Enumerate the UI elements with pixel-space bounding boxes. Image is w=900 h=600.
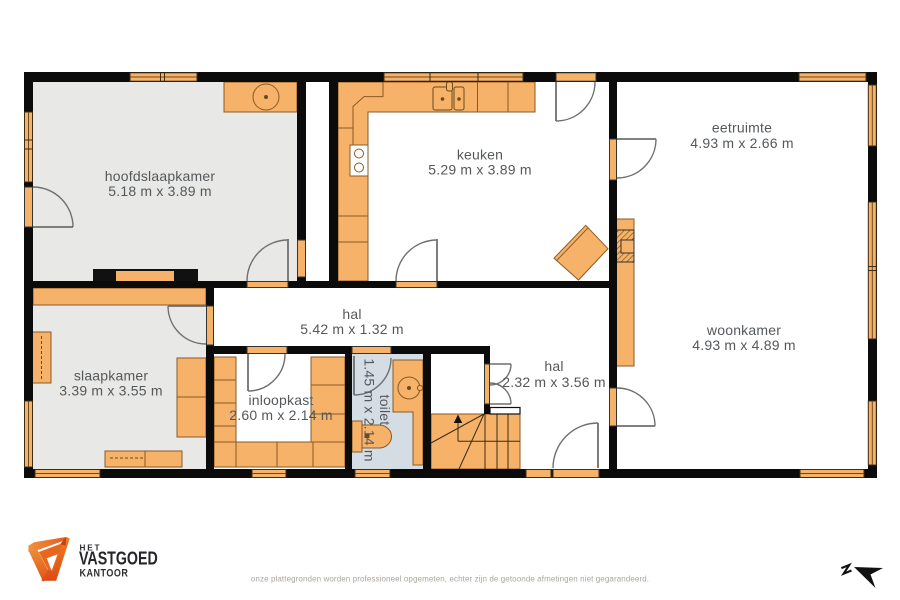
- svg-text:2.32 m x 3.56 m: 2.32 m x 3.56 m: [502, 374, 605, 390]
- svg-text:woonkamer: woonkamer: [706, 322, 781, 338]
- svg-text:2.60 m x 2.14 m: 2.60 m x 2.14 m: [229, 407, 332, 423]
- svg-text:eetruimte: eetruimte: [712, 120, 772, 136]
- svg-text:3.39 m x 3.55 m: 3.39 m x 3.55 m: [59, 383, 162, 399]
- svg-text:hal: hal: [342, 306, 361, 322]
- svg-text:inloopkast: inloopkast: [248, 392, 313, 408]
- svg-text:5.29 m x 3.89 m: 5.29 m x 3.89 m: [428, 162, 531, 178]
- svg-text:5.42 m x 1.32 m: 5.42 m x 1.32 m: [300, 321, 403, 337]
- svg-text:4.93 m x 4.89 m: 4.93 m x 4.89 m: [692, 337, 795, 353]
- svg-text:hal: hal: [544, 358, 563, 374]
- svg-text:onze plattegronden worden prof: onze plattegronden worden professioneel …: [251, 575, 649, 584]
- svg-text:KANTOOR: KANTOOR: [80, 568, 129, 580]
- svg-text:toilet: toilet: [377, 395, 393, 426]
- svg-text:slaapkamer: slaapkamer: [74, 368, 149, 384]
- svg-text:5.18 m x 3.89 m: 5.18 m x 3.89 m: [108, 183, 211, 199]
- svg-text:1.45 m x 2.14 m: 1.45 m x 2.14 m: [362, 358, 378, 461]
- svg-text:keuken: keuken: [457, 147, 503, 163]
- svg-text:hoofdslaapkamer: hoofdslaapkamer: [105, 168, 216, 184]
- svg-text:VASTGOED: VASTGOED: [79, 549, 158, 569]
- svg-text:4.93 m x 2.66 m: 4.93 m x 2.66 m: [690, 135, 793, 151]
